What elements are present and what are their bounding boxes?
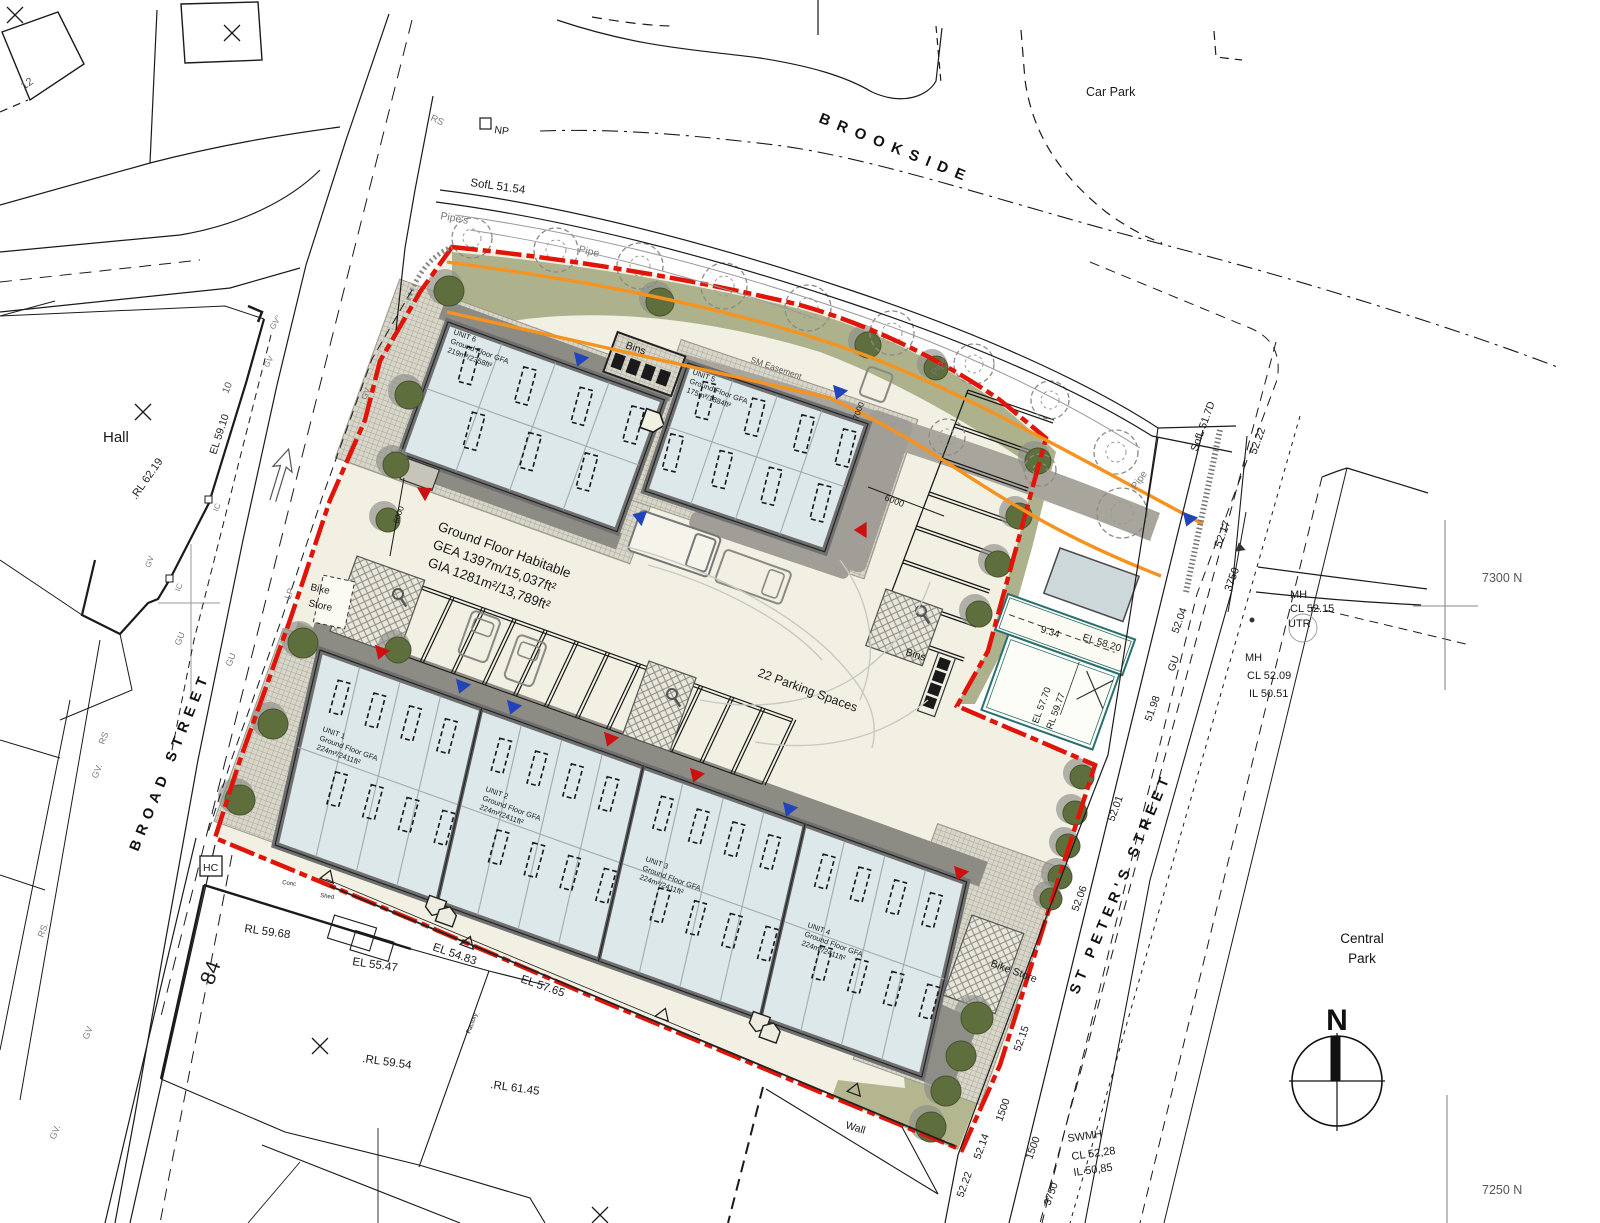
svg-text:MH: MH: [1245, 652, 1262, 664]
svg-text:Park: Park: [1348, 951, 1376, 966]
svg-text:HC: HC: [203, 862, 219, 874]
svg-text:Central: Central: [1340, 931, 1384, 946]
svg-text:7300 N: 7300 N: [1482, 571, 1522, 585]
svg-text:N: N: [1326, 1004, 1348, 1037]
svg-text:Car Park: Car Park: [1086, 85, 1136, 99]
svg-text:IL 50.51: IL 50.51: [1249, 688, 1288, 700]
svg-text:7250 N: 7250 N: [1482, 1183, 1522, 1197]
svg-text:NP: NP: [494, 124, 510, 138]
svg-text:Hall: Hall: [103, 429, 129, 446]
svg-text:UTR: UTR: [1288, 618, 1311, 630]
svg-text:MH: MH: [1290, 589, 1307, 601]
svg-text:CL 52.09: CL 52.09: [1247, 670, 1291, 682]
svg-text:CL 52.15: CL 52.15: [1290, 603, 1334, 615]
